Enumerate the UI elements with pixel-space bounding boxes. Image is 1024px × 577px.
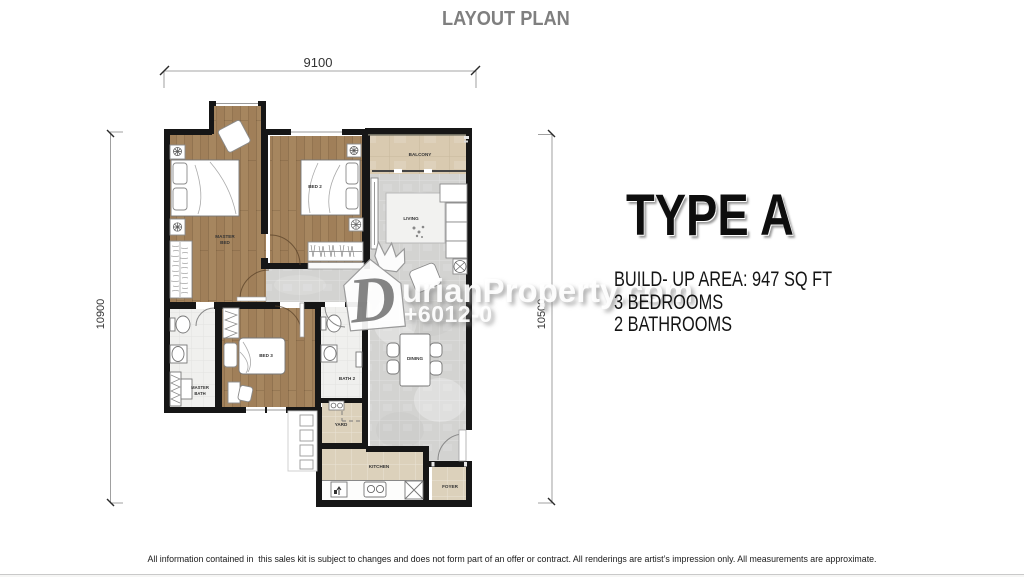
- svg-text:D: D: [345, 261, 399, 336]
- svg-text:YARD: YARD: [335, 422, 348, 427]
- svg-text:LIVING: LIVING: [403, 216, 419, 221]
- svg-text:BATH 2: BATH 2: [339, 376, 356, 381]
- svg-text:MASTER: MASTER: [215, 234, 235, 239]
- svg-text:BATH: BATH: [194, 391, 205, 396]
- svg-text:BALCONY: BALCONY: [409, 152, 432, 157]
- svg-text:DINING: DINING: [407, 356, 424, 361]
- svg-text:10900: 10900: [95, 299, 107, 330]
- svg-text:9100: 9100: [304, 55, 333, 70]
- svg-text:MASTER: MASTER: [191, 385, 209, 390]
- svg-text:BED 3: BED 3: [259, 353, 273, 358]
- svg-text:BED 2: BED 2: [308, 184, 322, 189]
- svg-text:BED: BED: [220, 240, 230, 245]
- svg-text:FOYER: FOYER: [442, 484, 459, 489]
- svg-text:KITCHEN: KITCHEN: [369, 464, 390, 469]
